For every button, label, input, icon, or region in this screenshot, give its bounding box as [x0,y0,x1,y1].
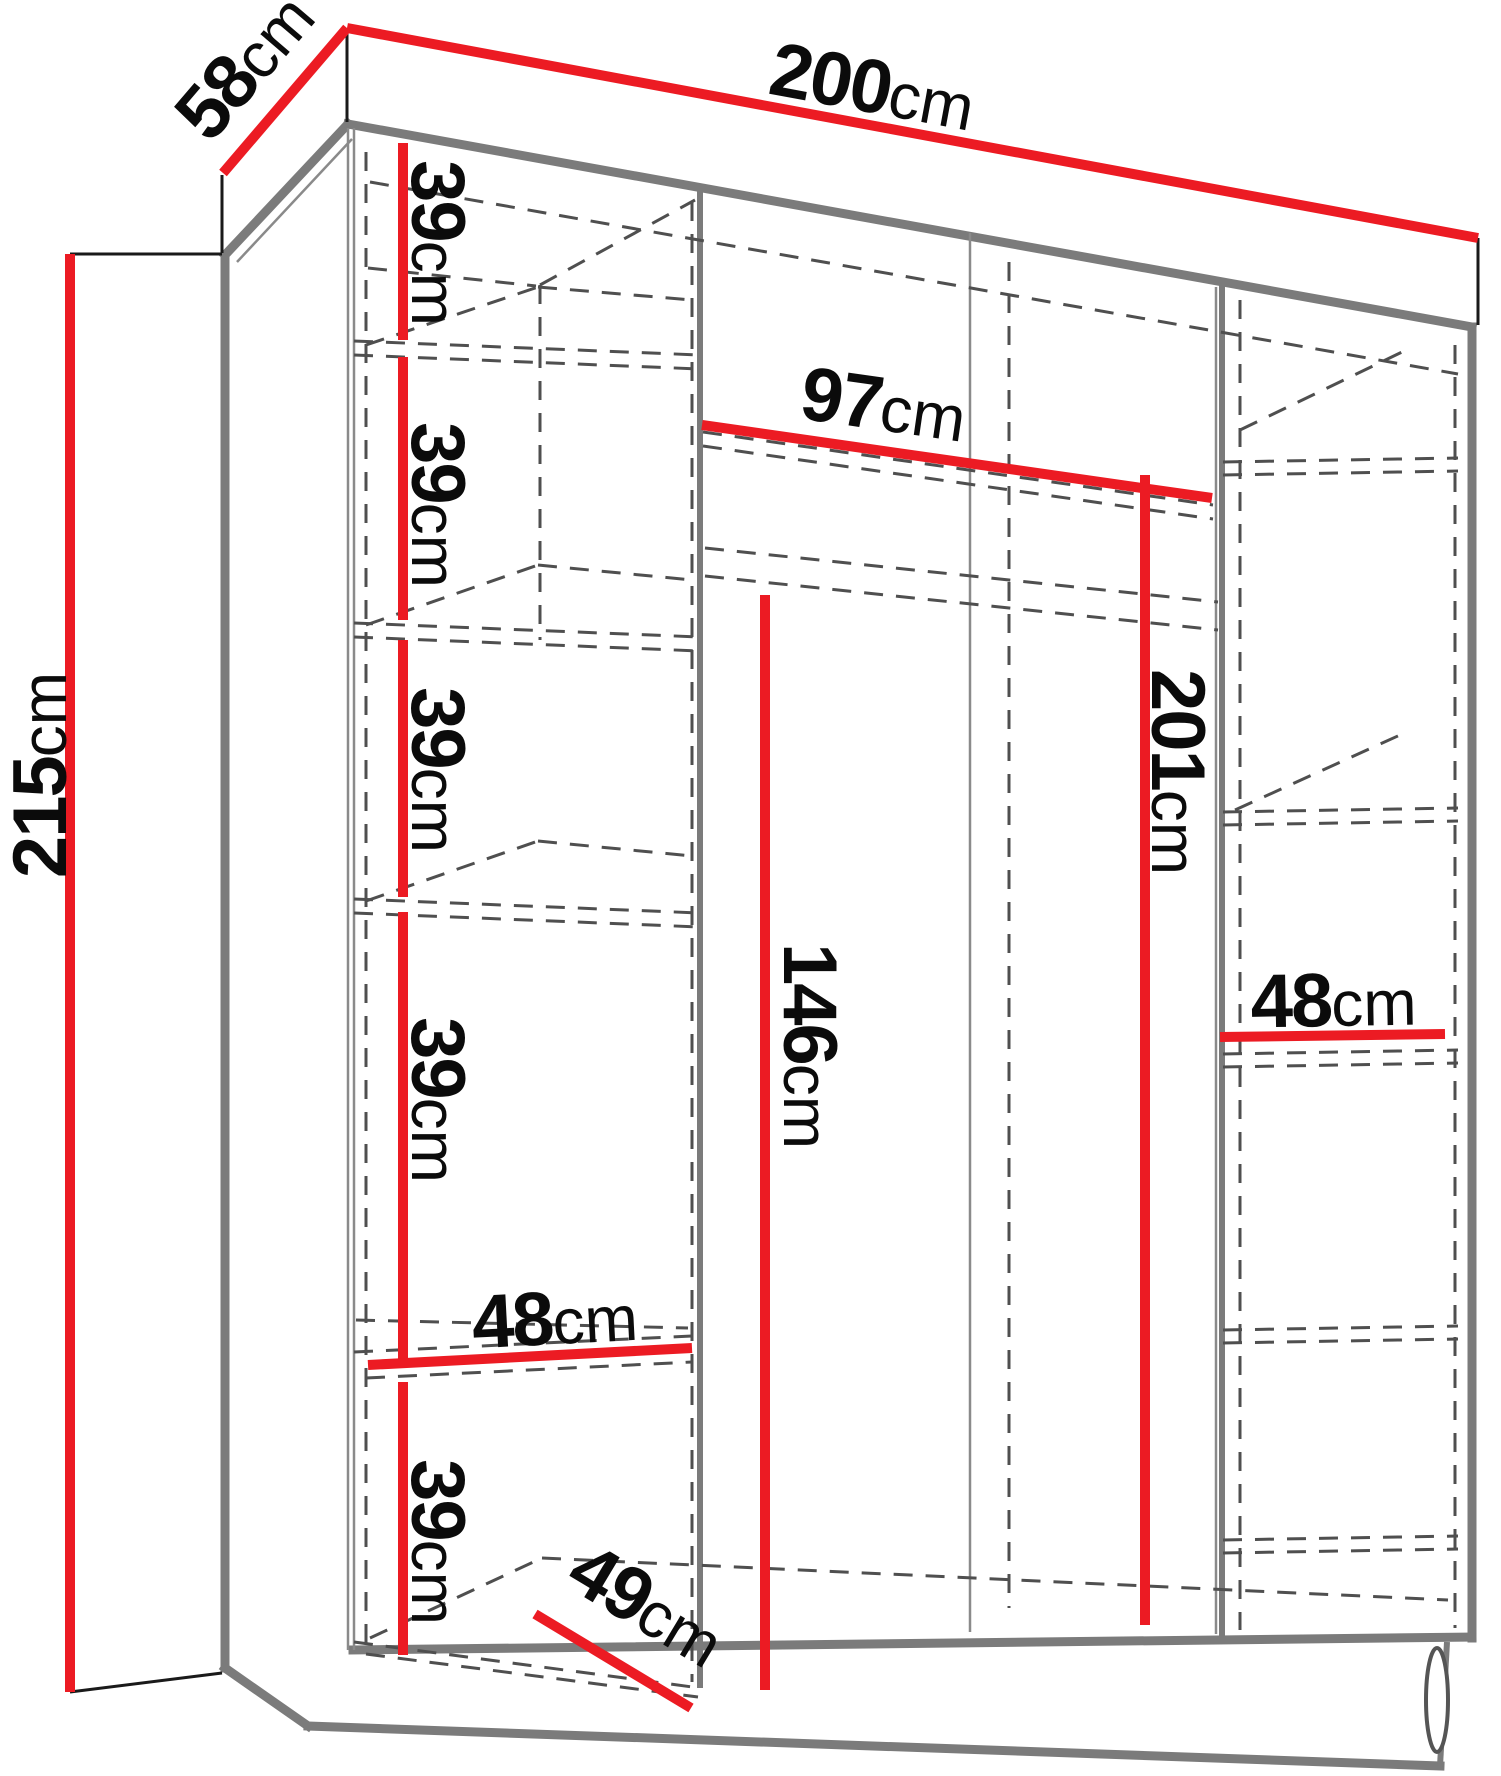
label-width: 200cm [764,26,982,147]
dimension-brackets [70,28,1478,1692]
wardrobe-dimension-diagram: 58cm 200cm 215cm 39cm 39cm 39cm 39cm 39c… [0,0,1501,1776]
dimension-lines [70,28,1478,1708]
plinth-left-edge [225,1668,308,1726]
label-shelf-gap-4: 39cm [395,1017,480,1183]
diagram-canvas: 58cm 200cm 215cm 39cm 39cm 39cm 39cm 39c… [0,0,1501,1776]
right-shelf-3 [1223,1050,1458,1067]
wardrobe-foot [1426,1648,1448,1752]
label-height: 215cm [0,672,83,878]
label-shelf-gap-2: 39cm [395,422,480,588]
wardrobe-inner-edges [237,128,1216,1650]
bottom-front-edge [353,1637,1472,1650]
label-left-shelf-width: 48cm [470,1272,640,1366]
front-top-edge [348,124,1472,327]
label-shelf-gap-3: 39cm [395,687,480,853]
label-shelf-depth: 49cm [554,1526,740,1684]
right-shelf-2 [1223,735,1458,825]
label-shelf-gap-5: 39cm [395,1459,480,1625]
top-right-depth-diagonal [1240,352,1402,430]
label-shelf-gap-1: 39cm [395,160,480,326]
top-back-edge [370,182,1458,374]
height-bracket-bottom [70,1673,222,1692]
right-shelf-5 [1223,1536,1458,1553]
label-interior-height: 201cm [1135,669,1220,875]
top-left-depth-diagonal [540,200,695,285]
side-top-inner-edge [237,139,352,262]
label-hanging-height: 146cm [767,943,852,1149]
right-shelf-1 [1223,458,1458,475]
right-shelf-4 [1223,1326,1458,1343]
label-right-shelf-width: 48cm [1250,957,1417,1045]
plinth-bottom-edge [308,1726,1440,1766]
